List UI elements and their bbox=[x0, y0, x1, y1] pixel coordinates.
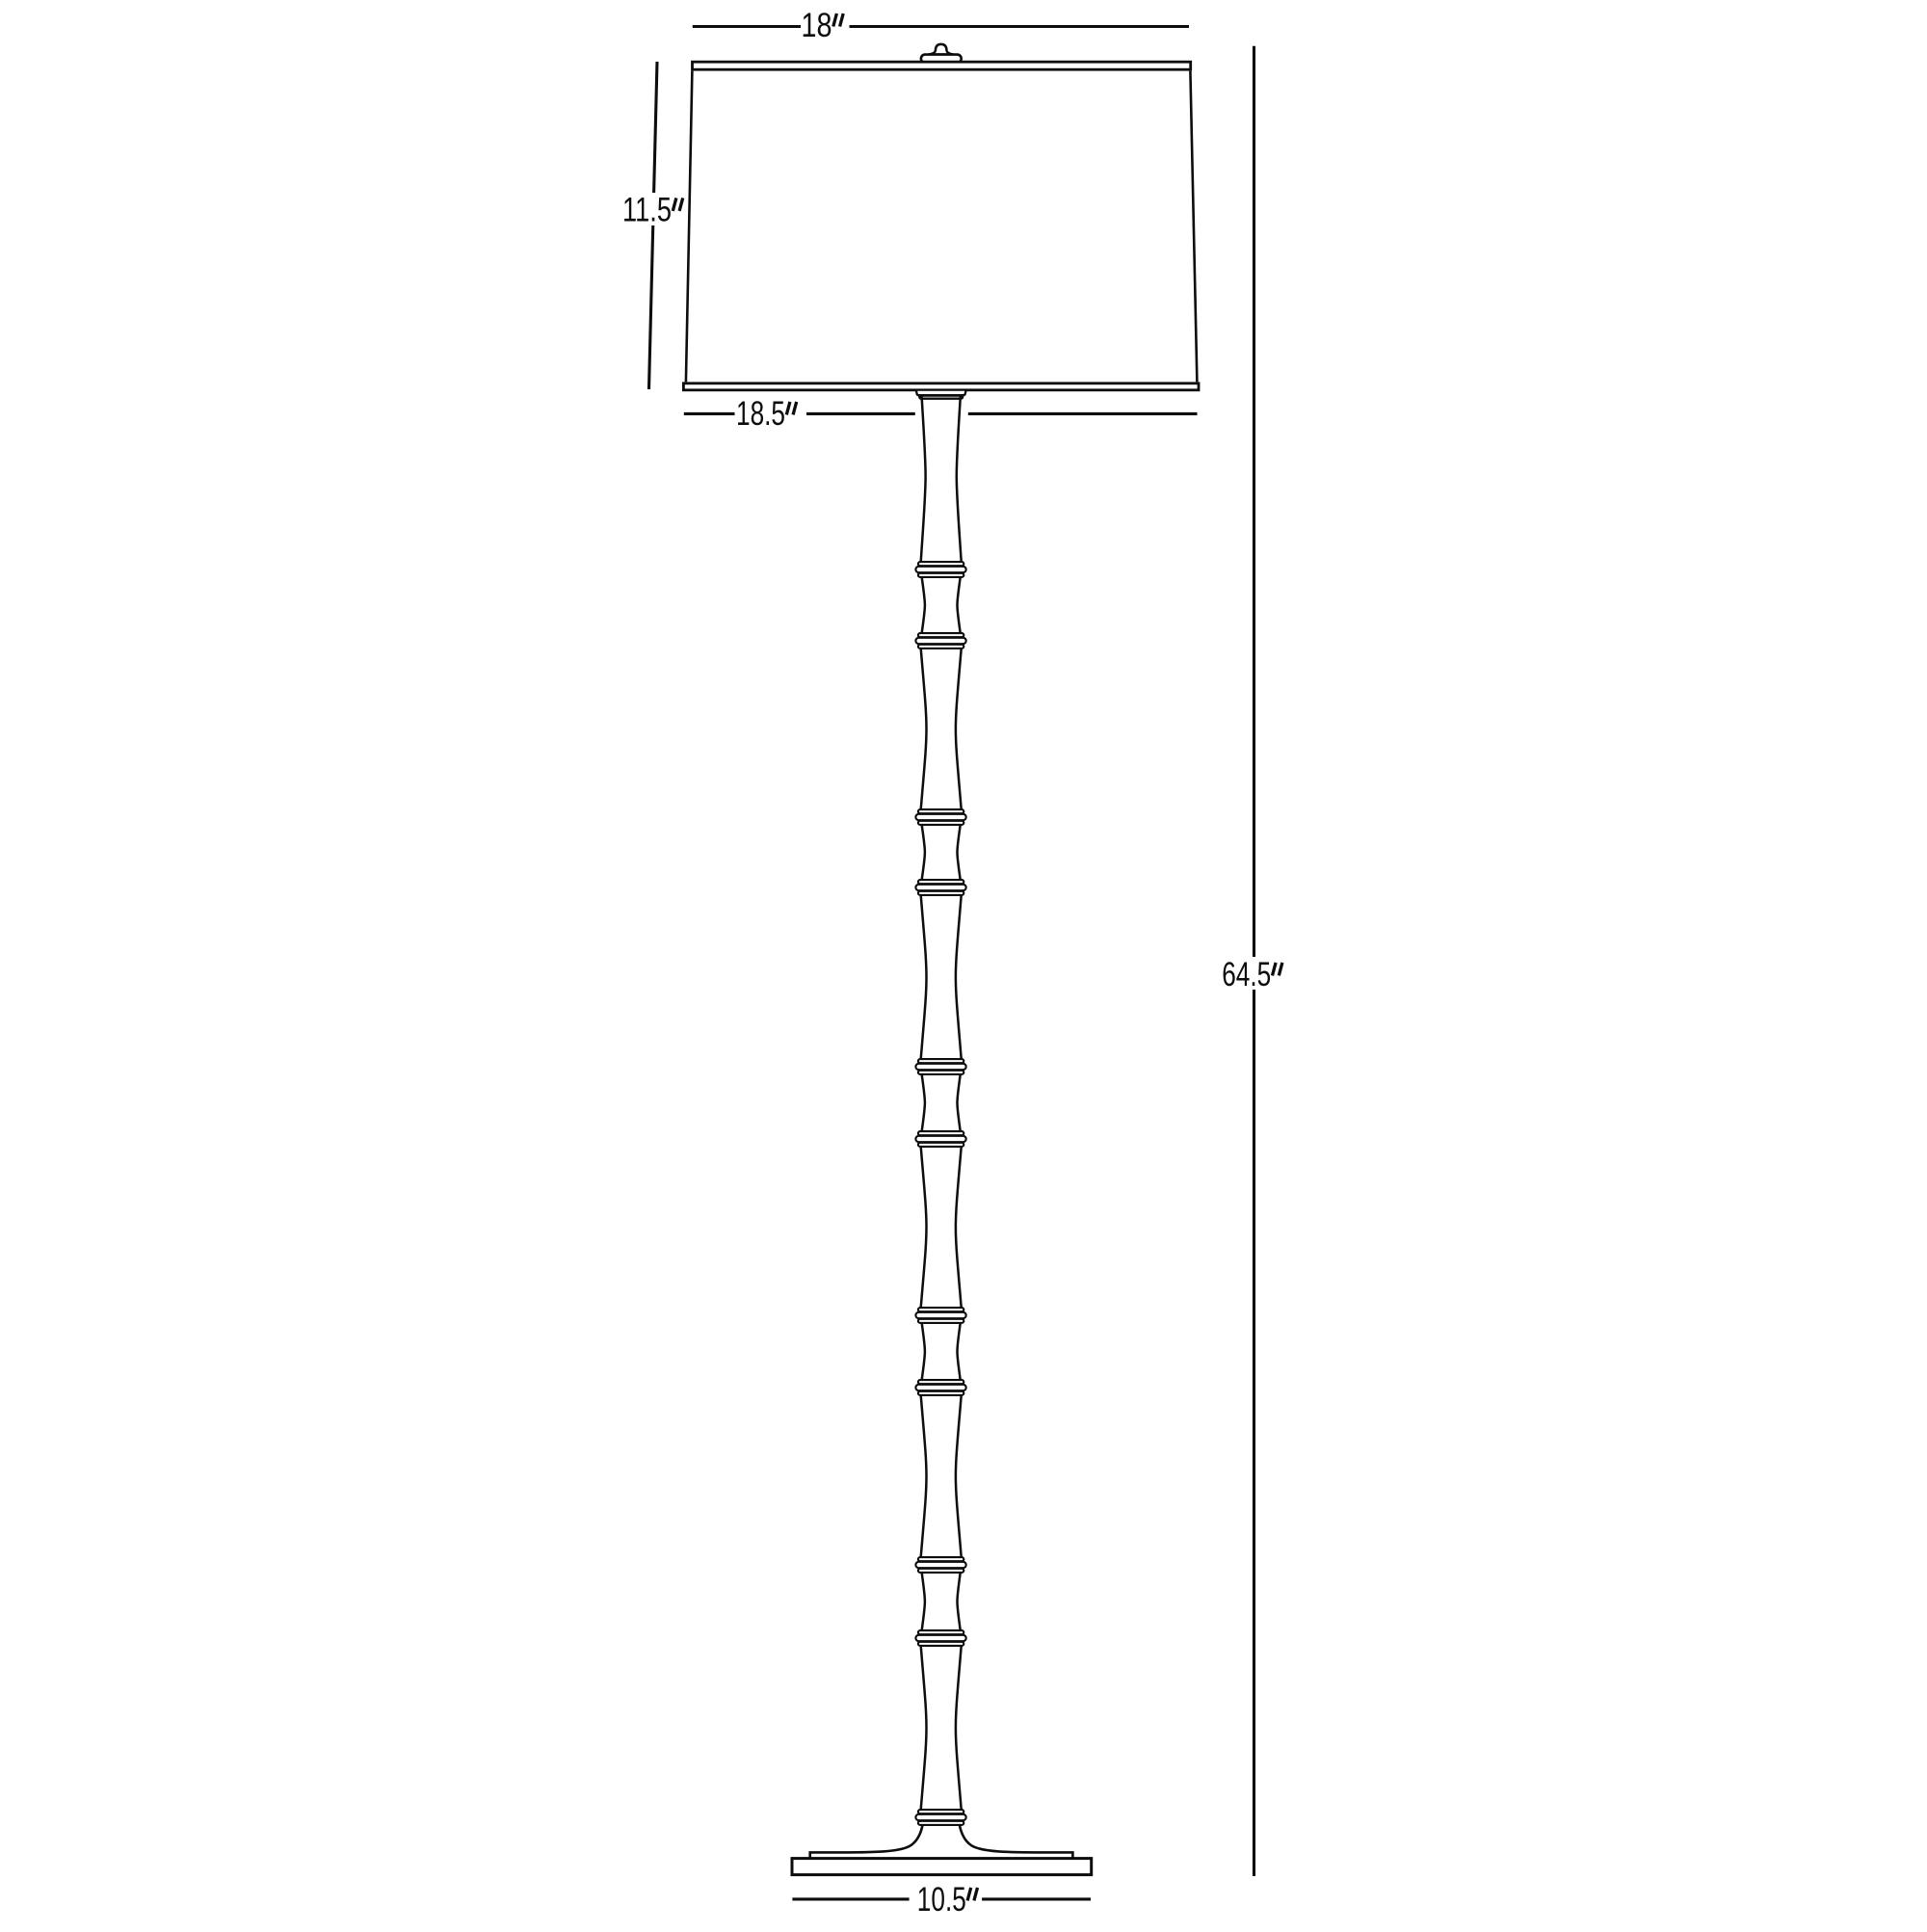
svg-text:64.5: 64.5 bbox=[1222, 956, 1271, 993]
svg-text:10.5: 10.5 bbox=[917, 1881, 966, 1919]
svg-text:18.5: 18.5 bbox=[736, 395, 785, 433]
svg-text:18: 18 bbox=[802, 7, 832, 44]
svg-text:11.5: 11.5 bbox=[622, 192, 672, 229]
